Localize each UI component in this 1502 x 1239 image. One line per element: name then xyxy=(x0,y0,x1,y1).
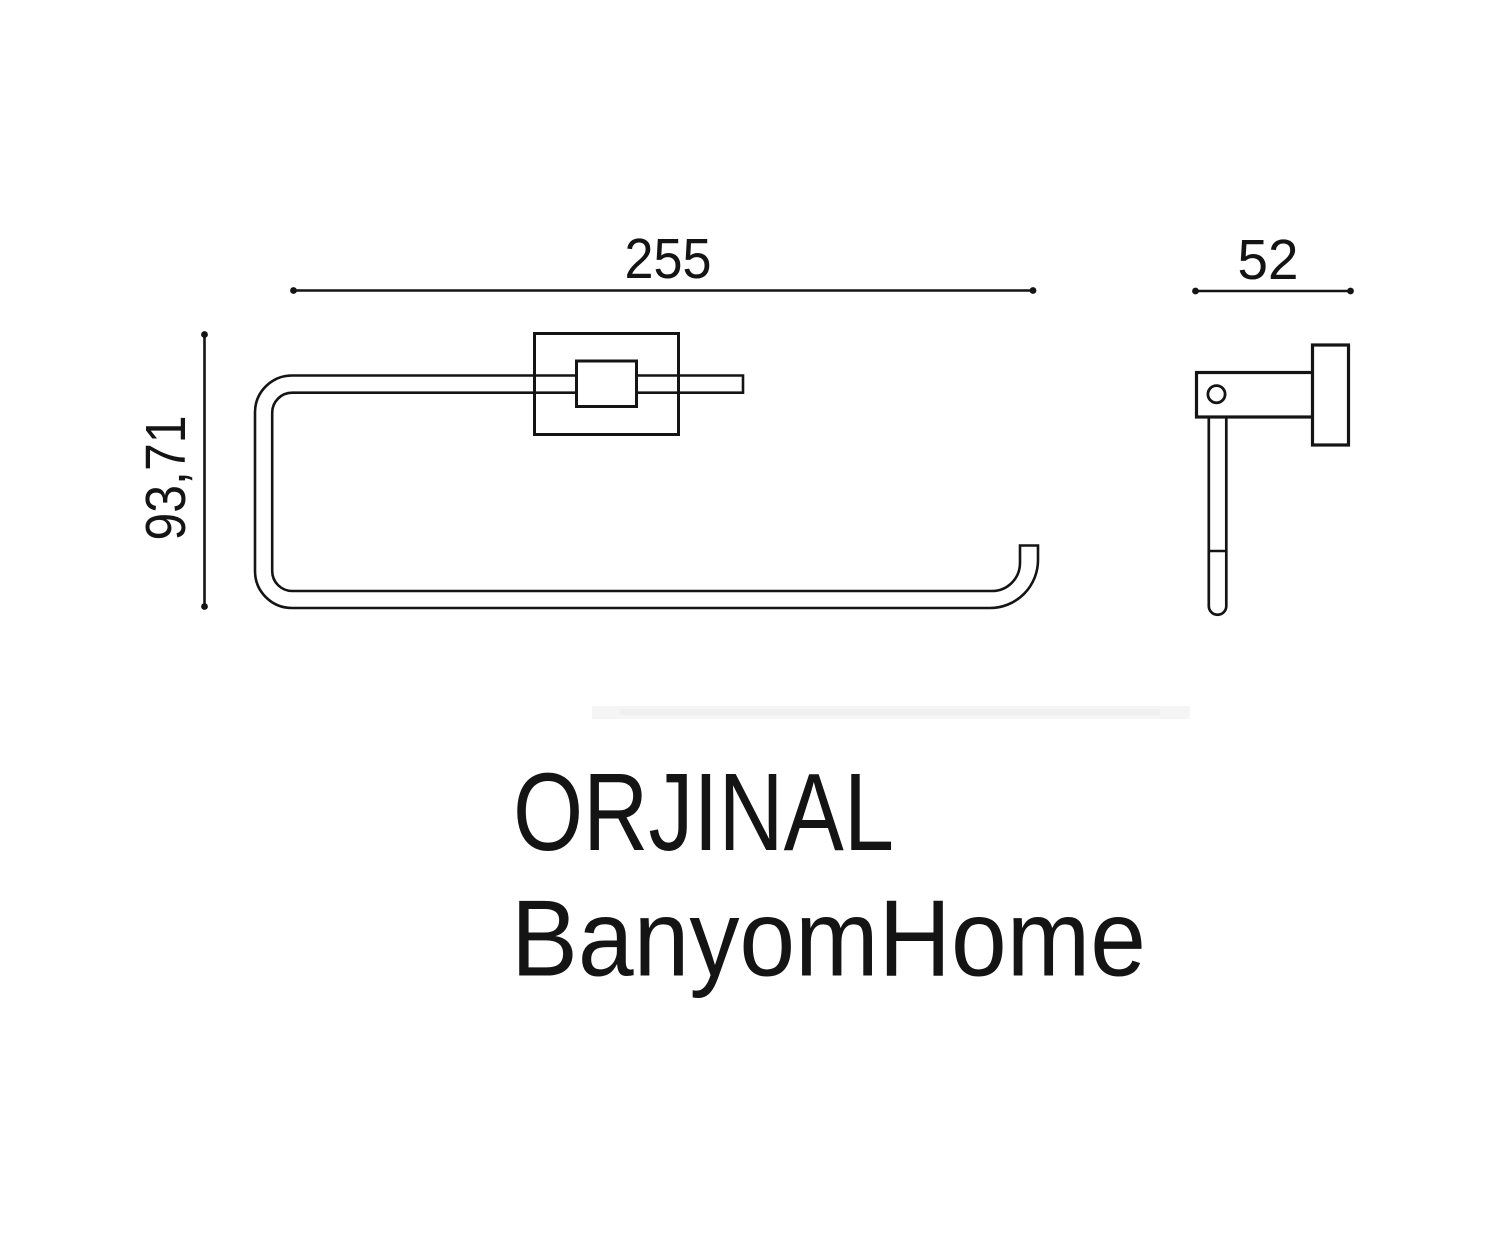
svg-text:ORJINAL: ORJINAL xyxy=(513,751,894,874)
svg-text:52: 52 xyxy=(1238,228,1299,291)
svg-text:BanyomHome: BanyomHome xyxy=(511,878,1146,999)
svg-text:255: 255 xyxy=(625,227,712,290)
svg-text:93,71: 93,71 xyxy=(134,416,197,541)
